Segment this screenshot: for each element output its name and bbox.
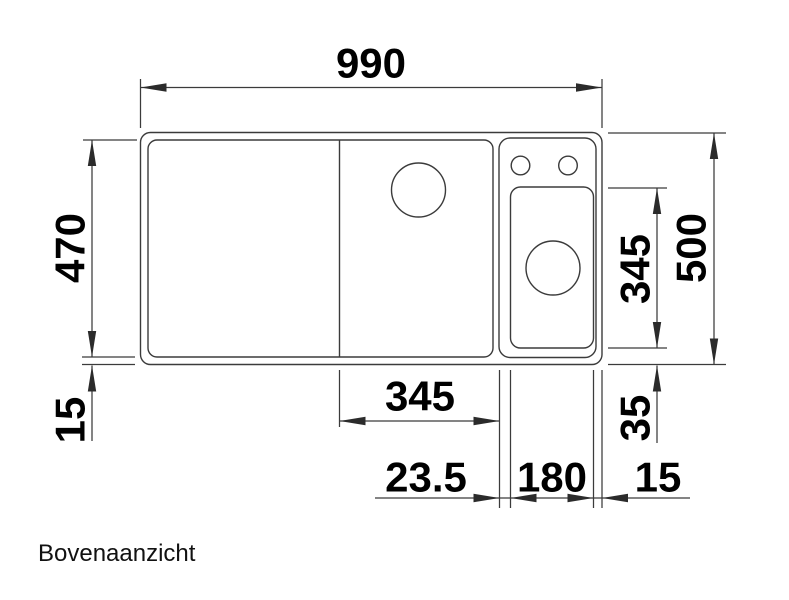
dim-total-width-label: 990 bbox=[336, 40, 406, 87]
dim-total-depth-label: 500 bbox=[668, 213, 715, 283]
view-title: Bovenaanzicht bbox=[38, 540, 196, 567]
dim-front-rim: 15 bbox=[47, 366, 97, 444]
arrowhead-down bbox=[88, 331, 96, 357]
dim-bowl-gap-label: 23.5 bbox=[385, 454, 467, 501]
dim-half-bowl-width-label: 180 bbox=[517, 454, 587, 501]
dim-main-bowl-width-label: 345 bbox=[385, 373, 455, 420]
dim-total-width: 990 bbox=[141, 40, 603, 129]
arrowhead-up bbox=[88, 366, 96, 392]
half-bowl-outline bbox=[511, 187, 594, 348]
arrowhead-right bbox=[474, 417, 500, 425]
dim-inner-depth-label: 470 bbox=[47, 213, 94, 283]
arrowhead-right bbox=[474, 494, 500, 502]
arrowhead-left bbox=[340, 417, 366, 425]
arrowhead-left bbox=[602, 494, 628, 502]
arrowhead-right bbox=[576, 83, 602, 91]
dim-inner-depth: 470 bbox=[47, 140, 138, 365]
main-bowl-drain-circle bbox=[392, 163, 446, 217]
dim-half-bowl-depth-label: 345 bbox=[612, 234, 659, 304]
dim-half-bowl-depth: 345 bbox=[608, 188, 667, 348]
arrowhead-down bbox=[710, 339, 718, 365]
arrowhead-down bbox=[653, 322, 661, 348]
arrowhead-up bbox=[88, 140, 96, 166]
dim-half-bowl-front-rim-label: 35 bbox=[612, 395, 659, 442]
sink-body bbox=[141, 133, 603, 365]
tap-hole-circle-1 bbox=[511, 156, 530, 175]
arrowhead-up bbox=[710, 133, 718, 159]
tap-hole-circle-2 bbox=[559, 156, 578, 175]
dim-half-bowl-front-rim: 35 bbox=[612, 366, 662, 444]
half-bowl-drain-circle bbox=[526, 241, 580, 295]
drainboard-and-main-bowl-outline bbox=[148, 140, 493, 357]
dim-front-rim-label: 15 bbox=[47, 397, 94, 444]
dim-right-rim-label: 15 bbox=[635, 454, 682, 501]
arrowhead-up bbox=[653, 366, 661, 392]
sink-top-view-drawing: 990 470 15 500 bbox=[0, 0, 789, 600]
drawing-canvas: 990 470 15 500 bbox=[0, 0, 789, 600]
sink-outer-outline bbox=[141, 133, 603, 365]
dim-main-bowl-width: 345 bbox=[340, 370, 500, 427]
arrowhead-up bbox=[653, 188, 661, 214]
arrowhead-left bbox=[141, 83, 167, 91]
